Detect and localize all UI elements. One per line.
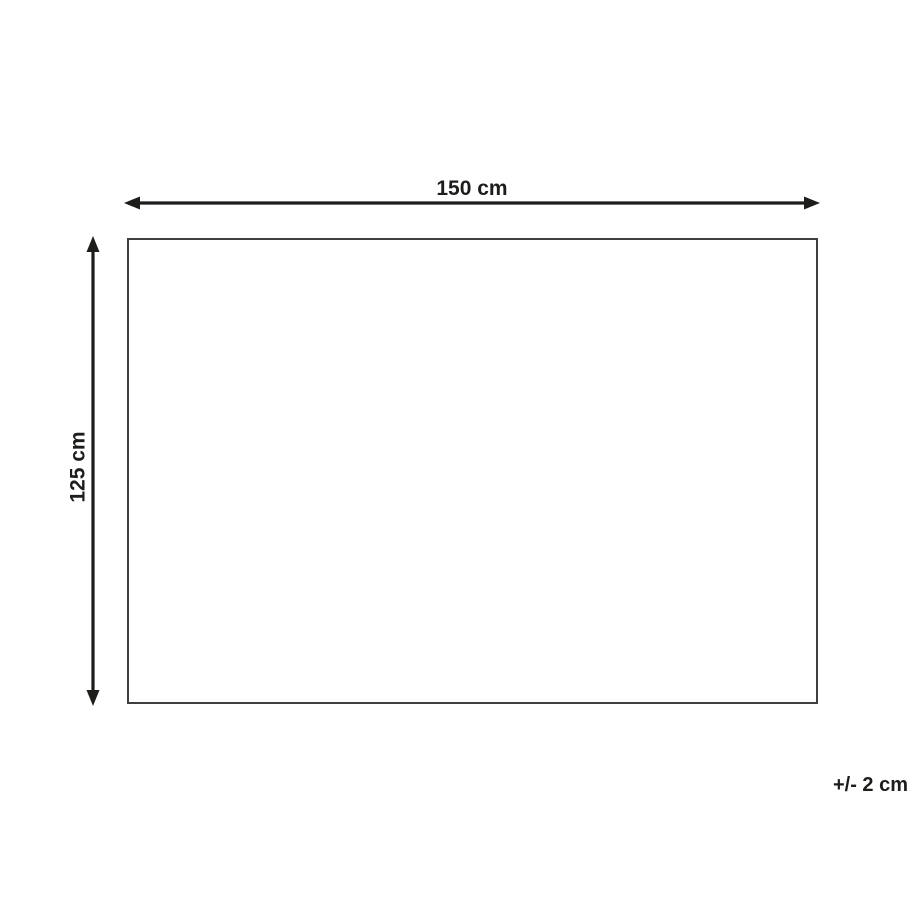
dimension-diagram: 150 cm 125 cm +/- 2 cm bbox=[0, 0, 920, 920]
width-dimension-label: 150 cm bbox=[124, 178, 820, 199]
height-dimension-label: 125 cm bbox=[68, 431, 89, 502]
height-arrow-head-bottom bbox=[87, 690, 100, 706]
product-outline-rect bbox=[127, 238, 818, 704]
height-arrow-head-top bbox=[87, 236, 100, 252]
tolerance-label: +/- 2 cm bbox=[833, 775, 908, 795]
